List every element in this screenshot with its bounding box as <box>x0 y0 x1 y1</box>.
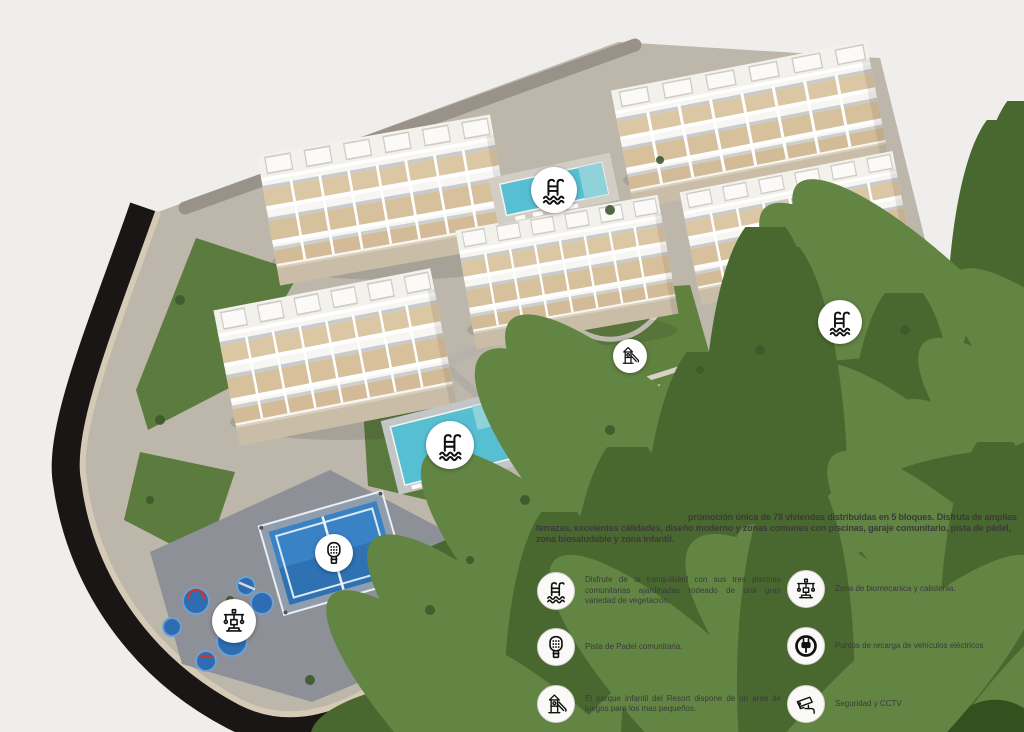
ev-charging-icon <box>787 627 825 665</box>
legend-item-cctv-text: Seguridad y CCTV <box>835 699 1024 710</box>
legend-item-padel: Pista de Padel comunitaria. <box>537 628 781 666</box>
cctv-camera-icon <box>787 685 825 723</box>
pool-ladder-icon <box>434 429 467 462</box>
legend-item-pools-text: Disfrute de la tranquilidad con sus tres… <box>585 575 781 607</box>
legend-item-playground: El parque infantil del Resort dispone de… <box>537 685 781 723</box>
legend-item-cctv: Seguridad y CCTV <box>787 685 1024 723</box>
site-aerial-render <box>0 0 1024 732</box>
legend-item-ev-charging-text: Puntos de recarga de vehículos eléctrico… <box>835 641 1024 652</box>
pool-ladder-icon <box>537 572 575 610</box>
legend-item-biomechanics: Zona de biomecanica y calistenia. <box>787 570 1024 608</box>
padel-racket-icon <box>321 540 347 566</box>
padel-racket-icon <box>537 628 575 666</box>
legend-item-playground-text: El parque infantil del Resort dispone de… <box>585 694 781 715</box>
legend-item-pools: Disfrute de la tranquilidad con sus tres… <box>537 572 781 610</box>
map-badge-playground <box>613 339 647 373</box>
map-badge-pool-center <box>426 421 474 469</box>
map-badge-pool-right <box>818 300 862 344</box>
pool-ladder-icon <box>825 307 855 337</box>
pool-ladder-icon <box>538 174 569 205</box>
playground-tower-icon <box>537 685 575 723</box>
brochure-page: { "page": { "background": "#f0eeec", "ty… <box>0 0 1024 732</box>
map-badge-padel <box>315 534 353 572</box>
promo-text: promoción única de 78 viviendas distribu… <box>536 512 1022 545</box>
biomechanics-icon <box>787 570 825 608</box>
legend-item-biomechanics-text: Zona de biomecanica y calistenia. <box>835 584 1024 595</box>
legend-item-ev-charging: Puntos de recarga de vehículos eléctrico… <box>787 627 1024 665</box>
map-badge-pool-top <box>531 167 577 213</box>
playground-tower-icon <box>618 344 641 367</box>
biomechanics-icon <box>219 606 249 636</box>
map-badge-biomechanics <box>212 599 256 643</box>
legend-item-padel-text: Pista de Padel comunitaria. <box>585 642 781 653</box>
